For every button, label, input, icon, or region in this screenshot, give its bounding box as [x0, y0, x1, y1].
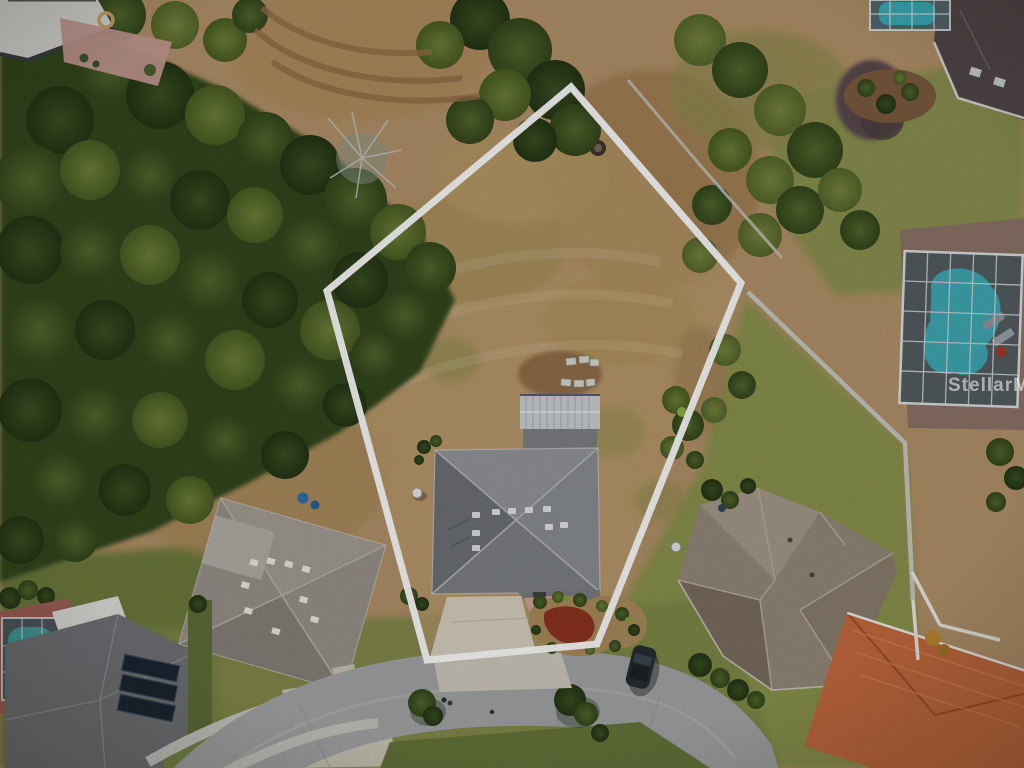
mls-watermark: StellarMLS — [948, 375, 1024, 396]
vignette — [0, 0, 1024, 768]
aerial-photo: StellarMLS — [0, 0, 1024, 768]
aerial-photo-canvas: StellarMLS — [0, 0, 1024, 768]
